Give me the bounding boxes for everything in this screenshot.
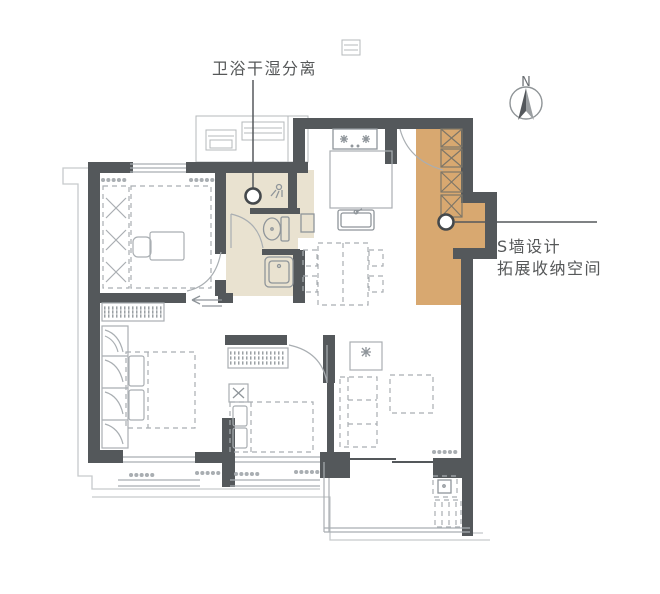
living-room-furniture bbox=[340, 342, 433, 447]
window-top-bedroom bbox=[130, 164, 186, 172]
north-arrow-icon bbox=[518, 88, 526, 120]
sliding-door-arrow bbox=[192, 296, 222, 306]
dining-set bbox=[303, 243, 383, 305]
chair-icon bbox=[369, 276, 383, 292]
floor-plan-svg: N 卫浴干湿分离 S墙设计 拓展收纳空间 bbox=[0, 0, 660, 594]
nightstand-icon bbox=[229, 384, 248, 402]
equipment-platform bbox=[196, 116, 308, 162]
chair-icon bbox=[303, 276, 317, 292]
kitchen-sink-icon bbox=[338, 209, 374, 230]
swall-leader-marker bbox=[439, 215, 454, 230]
washing-machine-icon bbox=[433, 476, 457, 497]
wardrobe-icon bbox=[102, 326, 128, 448]
side-table-icon bbox=[350, 342, 382, 370]
compass-icon: N bbox=[510, 75, 542, 120]
sofa-icon bbox=[340, 377, 377, 447]
desk-icon bbox=[150, 232, 184, 260]
counter-icon bbox=[330, 151, 392, 208]
bedroom-topleft-furniture bbox=[103, 180, 214, 288]
north-arrow-icon bbox=[526, 88, 534, 120]
compass-north-label: N bbox=[521, 75, 531, 90]
chair-icon bbox=[369, 250, 383, 266]
chair-icon bbox=[133, 237, 151, 257]
double-bed-icon bbox=[126, 352, 195, 428]
swall-annotation-line1: S墙设计 bbox=[497, 237, 561, 256]
bedroom2-furniture bbox=[228, 345, 327, 474]
floor-plan-page: N 卫浴干湿分离 S墙设计 拓展收纳空间 bbox=[0, 0, 660, 594]
bed-icon bbox=[230, 402, 313, 452]
chair-icon bbox=[303, 250, 317, 266]
vent-symbol bbox=[342, 40, 360, 55]
laundry-cabinet-icon bbox=[435, 500, 461, 527]
bathroom-annotation-text: 卫浴干湿分离 bbox=[212, 59, 317, 78]
coffee-table-icon bbox=[390, 375, 433, 413]
bathroom-leader-marker bbox=[246, 189, 261, 204]
stove-icon bbox=[333, 129, 377, 149]
bedroom1-furniture bbox=[102, 296, 222, 475]
bedroom2-door-arc bbox=[289, 345, 327, 383]
kitchen-fixtures bbox=[330, 129, 392, 230]
bay-window-bedroom1 bbox=[118, 457, 200, 486]
swall-annotation-line2: 拓展收纳空间 bbox=[497, 259, 602, 278]
